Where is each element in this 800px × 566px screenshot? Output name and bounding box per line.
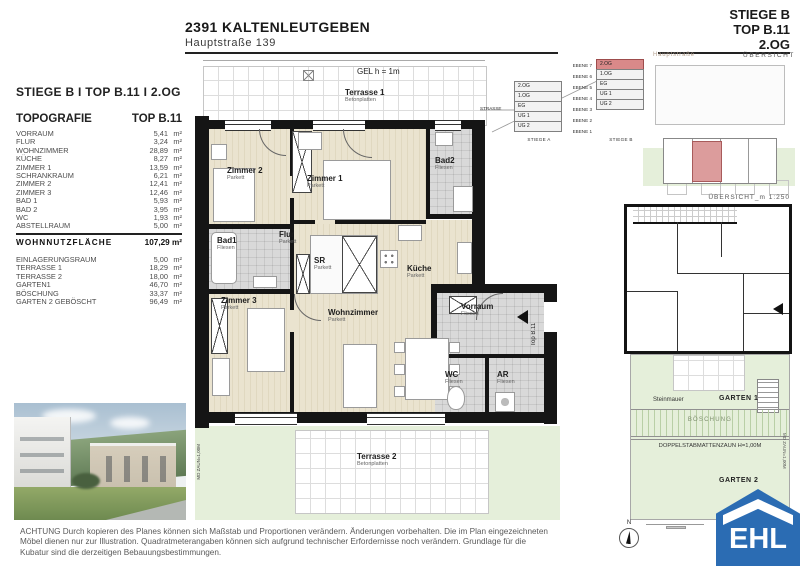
street-label: Hauptstraße xyxy=(653,52,695,58)
garten2-label: GARTEN 2 xyxy=(719,477,758,484)
plan-line xyxy=(627,291,677,292)
total-value: 107,29 m² xyxy=(145,238,182,247)
door-gap xyxy=(290,310,294,332)
overview-title: ÜBERSICHT xyxy=(743,52,795,59)
ebene-label: EBENE 4 xyxy=(562,93,592,104)
chair xyxy=(394,386,405,397)
detail-overview-plan xyxy=(624,204,792,354)
bed xyxy=(247,308,285,372)
unit-title-line: STIEGE B xyxy=(600,7,790,22)
header-rule-left xyxy=(185,52,558,54)
building-left xyxy=(14,417,71,493)
building-footprint-lower xyxy=(663,138,777,184)
level-diagram: STRASSE 2.OG1.OGEGUG 1UG 2 EBENE 7EBENE … xyxy=(478,60,650,146)
dresser xyxy=(298,132,322,150)
ebene-label: EBENE 7 xyxy=(562,60,592,71)
label-sr: SR Parkett xyxy=(314,256,331,272)
wall xyxy=(426,129,430,219)
stiege-b-label: STIEGE B xyxy=(596,137,646,142)
window xyxy=(367,413,445,425)
fence-line xyxy=(631,439,789,440)
extra-name: GARTEN 2 GEBÖSCHT xyxy=(16,298,134,306)
disclaimer-line: Möbel dienen nur zur Illustration. Quadr… xyxy=(20,537,600,547)
window xyxy=(235,413,297,425)
boeschung-band xyxy=(631,410,789,437)
unit-line: STIEGE B I TOP B.11 I 2.OG xyxy=(16,85,181,99)
compass-circle-icon xyxy=(619,528,639,548)
wall xyxy=(426,214,472,219)
north-label: N xyxy=(618,520,640,527)
project-title: 2391 KALTENLEUTGEBEN xyxy=(185,19,370,35)
level-cell: UG 2 xyxy=(514,121,562,132)
level-cell: UG 2 xyxy=(596,99,644,110)
wall xyxy=(431,284,557,293)
label-terrasse1: Terrasse 1 Betonplatten xyxy=(345,88,384,104)
wall xyxy=(195,116,209,428)
stove xyxy=(380,250,398,268)
desk xyxy=(212,358,230,396)
label-zimmer3: Zimmer 3 Parkett xyxy=(221,296,257,312)
wall xyxy=(209,224,290,229)
steinmauer-label: Steinmauer xyxy=(653,397,684,403)
windows xyxy=(94,456,172,482)
logo-text: EHL xyxy=(716,525,800,554)
ebene-label: EBENE 5 xyxy=(562,82,592,93)
ebene-label: EBENE 2 xyxy=(562,115,592,126)
strasse-label: STRASSE xyxy=(480,106,501,111)
topografie-header: TOPOGRAFIE TOP B.11 xyxy=(16,113,182,125)
unit-title-line: 2.OG xyxy=(600,37,790,52)
fence-label: DOPPELSTABMATTENZAUN H=1,00M xyxy=(631,443,789,449)
label-wc: WC Fliesen xyxy=(445,370,463,386)
label-vorraum: Vorraum Fliesen xyxy=(461,302,493,318)
plan-line xyxy=(677,291,678,351)
disclaimer-line: Kubatur sind die derzeitigen Bebauungsbe… xyxy=(20,548,600,558)
label-zimmer1: Zimmer 1 Parkett xyxy=(307,174,343,190)
bush xyxy=(72,473,100,489)
entrance-opening xyxy=(544,302,557,332)
garten1-label: GARTEN 1 xyxy=(719,395,758,402)
wall xyxy=(209,289,294,294)
windows xyxy=(20,425,64,485)
stairs xyxy=(757,379,779,413)
plan-line xyxy=(677,222,678,273)
extra-area: 96,49 xyxy=(134,298,168,306)
shower xyxy=(453,186,473,212)
fence-right-label: MD ZAUN=1,00M xyxy=(782,433,787,469)
label-terrasse2: Terrasse 2 Betonplatten xyxy=(357,452,396,468)
garden-terrace xyxy=(673,355,745,391)
wardrobe xyxy=(296,254,310,294)
window xyxy=(435,120,461,131)
total-row: WOHNNUTZFLÄCHE 107,29 m² xyxy=(16,238,182,247)
detail-overview-title: ÜBERSICHT_m 1:250 xyxy=(668,194,790,201)
building-footprint-upper xyxy=(655,65,785,125)
stiege-b-stack: 2.OG1.OGEGUG 1UG 2 xyxy=(596,60,644,110)
stiege-a-label: STIEGE A xyxy=(514,137,564,142)
sink xyxy=(435,132,453,146)
chair xyxy=(394,364,405,375)
ebene-labels: EBENE 7EBENE 6EBENE 5EBENE 4EBENE 3EBENE… xyxy=(562,60,592,137)
room-area-table: VORRAUM 5,41 m² FLUR 3,24 m² WOHNZIMMER … xyxy=(16,130,182,231)
ebene-label: EBENE 6 xyxy=(562,71,592,82)
kitchen-sink xyxy=(398,225,422,241)
entrance-arrow-icon xyxy=(517,310,528,324)
wall xyxy=(435,354,544,358)
project-address: Hauptstraße 139 xyxy=(185,37,276,49)
stiege-a-stack: 2.OG1.OGEGUG 1UG 2 xyxy=(514,82,562,132)
toilet xyxy=(447,386,465,410)
total-label: WOHNNUTZFLÄCHE xyxy=(16,238,112,247)
ehl-logo: EHL xyxy=(716,489,800,566)
plan-line xyxy=(677,273,789,274)
label-ar: AR Fliesen xyxy=(497,370,515,386)
label-bad1: Bad1 Fliesen xyxy=(217,236,237,252)
room-area: 5,00 xyxy=(134,222,168,230)
plan-line xyxy=(743,273,744,351)
boeschung-label: BÖSCHUNG xyxy=(631,417,789,423)
sofa xyxy=(343,344,377,408)
washing-machine xyxy=(495,392,515,412)
chair xyxy=(449,342,460,353)
wardrobe xyxy=(342,236,377,293)
wall xyxy=(294,220,426,224)
label-flur: Flur Parkett xyxy=(279,230,296,246)
disclaimer-line: ACHTUNG Durch kopieren des Planes können… xyxy=(20,527,600,537)
scale-bar xyxy=(646,524,704,530)
site-overview: Hauptstraße ÜBERSICHT xyxy=(643,52,795,186)
room-name: ABSTELLRAUM xyxy=(16,222,134,230)
fence-label: MD ZAUN=1,00M xyxy=(196,444,201,480)
topografie-title: TOPOGRAFIE xyxy=(16,113,92,125)
sink xyxy=(253,276,277,288)
disclaimer: ACHTUNG Durch kopieren des Planes können… xyxy=(20,527,600,558)
table-row: ABSTELLRAUM 5,00 m² xyxy=(16,222,182,230)
render-photo xyxy=(14,403,186,520)
bed xyxy=(323,160,391,220)
plan-sheet: 2391 KALTENLEUTGEBEN Hauptstraße 139 STI… xyxy=(0,0,800,566)
highlighted-unit xyxy=(692,141,722,182)
mini-entrance-arrow-icon xyxy=(773,303,783,315)
room-name: BAD 2 xyxy=(16,206,134,214)
drain-icon xyxy=(303,70,314,81)
gel-note: GEL h = 1m xyxy=(357,67,400,76)
plan-line xyxy=(721,222,722,257)
ebene-label: EBENE 1 xyxy=(562,126,592,137)
north-compass: N xyxy=(618,520,640,548)
scale-segment xyxy=(666,526,686,529)
dining-table xyxy=(405,338,449,400)
door-gap xyxy=(315,220,335,224)
label-wohnzimmer: Wohnzimmer Parkett xyxy=(328,308,378,324)
table-row: GARTEN 2 GEBÖSCHT 96,49 m² xyxy=(16,298,182,306)
total-rule xyxy=(16,233,182,235)
compass-needle-icon xyxy=(625,531,632,545)
topografie-unit: TOP B.11 xyxy=(132,113,182,125)
wall xyxy=(485,358,489,412)
label-bad2: Bad2 Fliesen xyxy=(435,156,455,172)
extra-area-unit: m² xyxy=(168,298,182,306)
unit-divider xyxy=(748,139,749,183)
label-zimmer2: Zimmer 2 Parkett xyxy=(227,166,263,182)
fridge xyxy=(457,242,472,274)
unit-title-line: TOP B.11 xyxy=(600,22,790,37)
extras-table: EINLAGERUNGSRAUM 5,00 m² TERRASSE 1 18,2… xyxy=(16,256,182,306)
unit-title-block: STIEGE BTOP B.112.OG xyxy=(600,7,790,52)
room-terrasse2 xyxy=(295,430,489,514)
cloud xyxy=(110,417,150,429)
entrance-label: Top B.11 xyxy=(531,304,537,346)
label-kueche: Küche Parkett xyxy=(407,264,431,280)
ebene-label: EBENE 3 xyxy=(562,104,592,115)
room-area-unit: m² xyxy=(168,222,182,230)
chair xyxy=(394,342,405,353)
dimension-line xyxy=(203,60,485,61)
nightstand xyxy=(211,144,227,160)
